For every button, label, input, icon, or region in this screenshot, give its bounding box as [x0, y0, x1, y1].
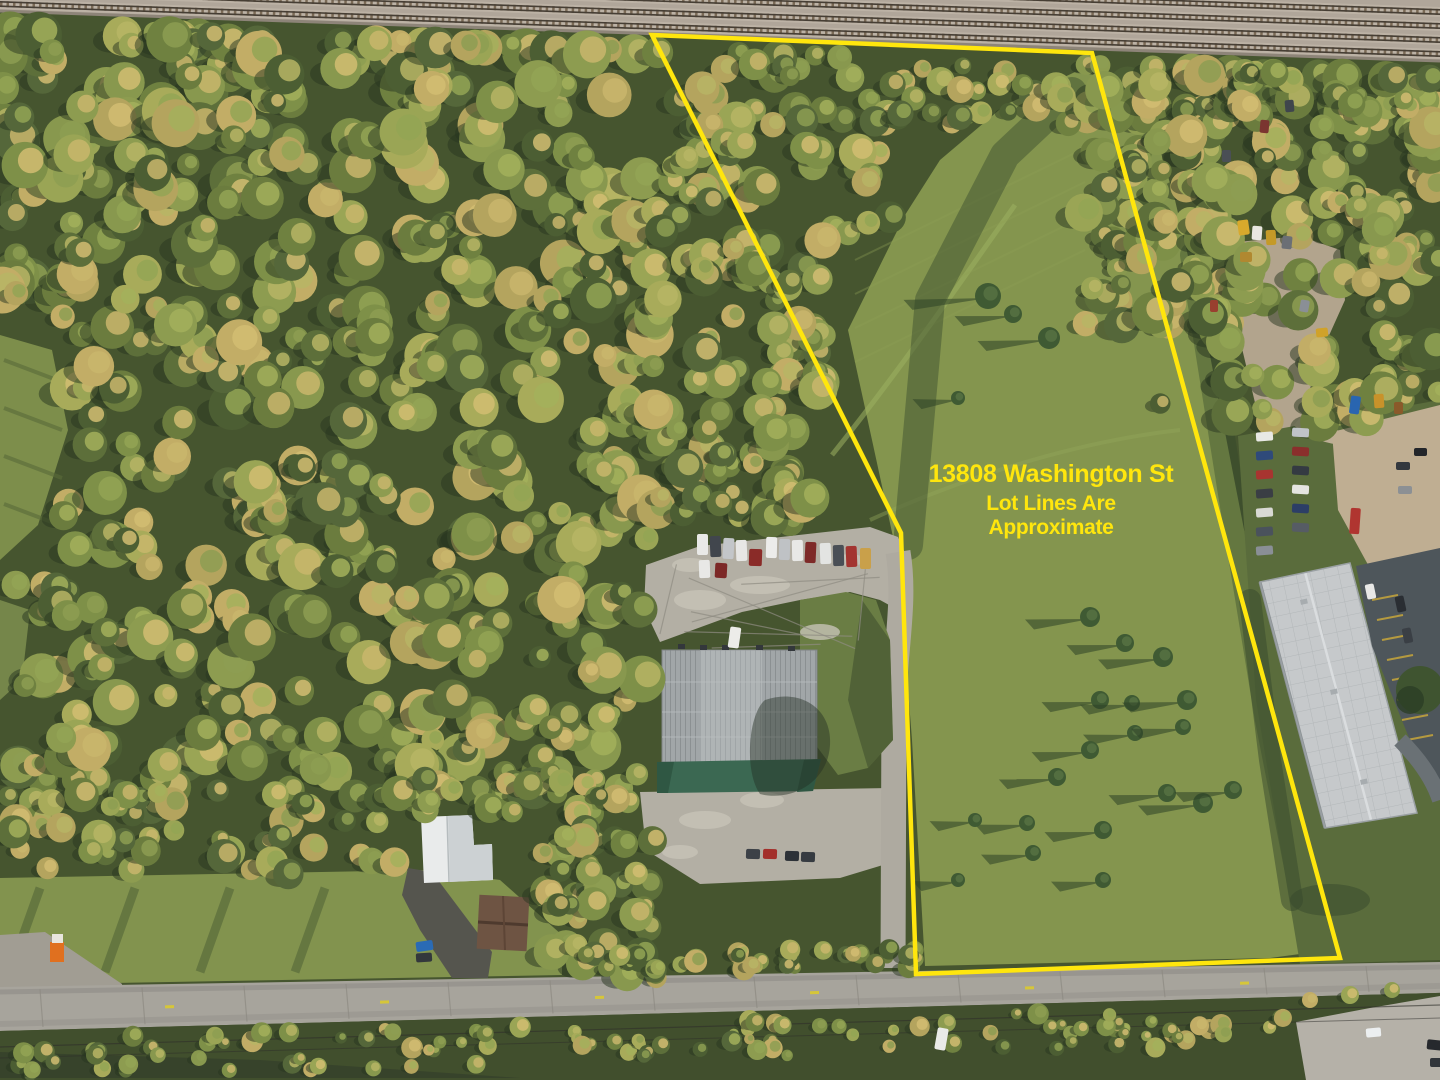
- annotation-overlay: 13808 Washington St Lot Lines Are Approx…: [905, 460, 1197, 541]
- annotation-address: 13808 Washington St: [905, 460, 1197, 489]
- annotation-disclaimer-line1: Lot Lines Are: [905, 492, 1197, 516]
- annotation-disclaimer-line2: Approximate: [905, 516, 1197, 540]
- aerial-photo-canvas: [0, 0, 1440, 1080]
- aerial-photo: 13808 Washington St Lot Lines Are Approx…: [0, 0, 1440, 1080]
